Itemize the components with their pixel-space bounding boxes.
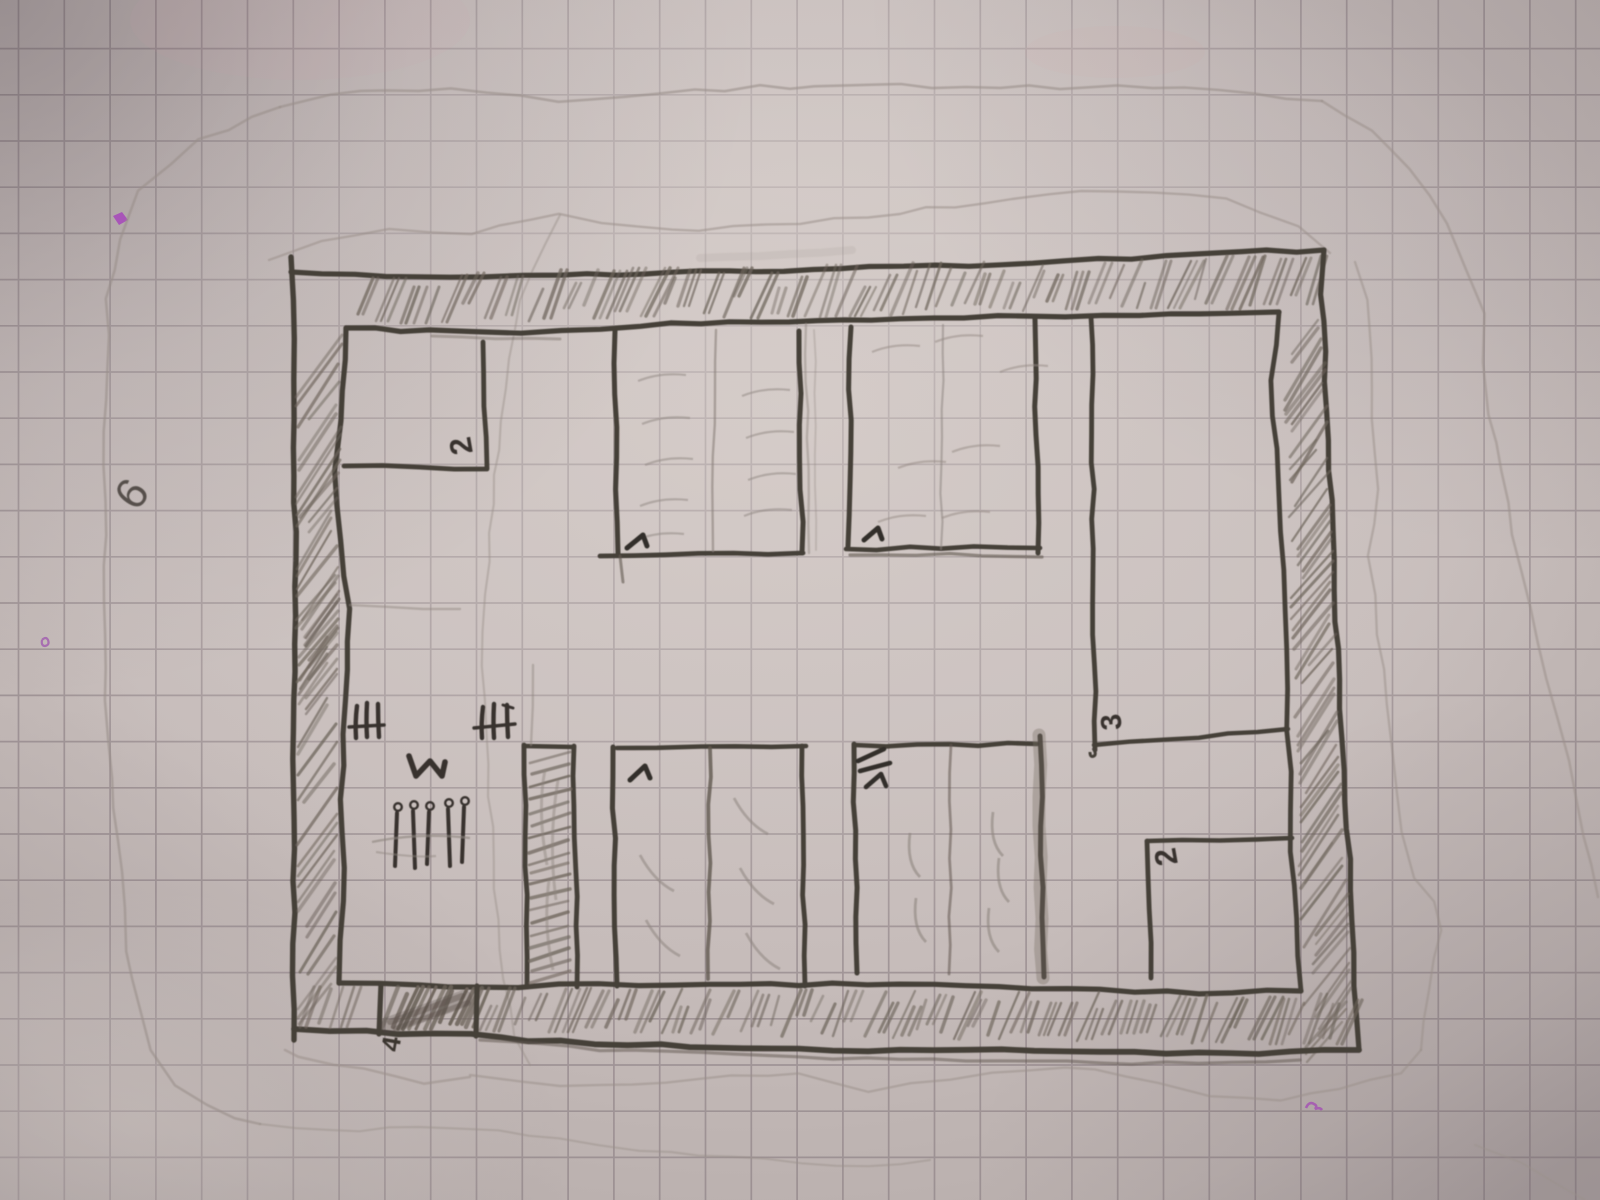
- svg-text:3: 3: [1095, 713, 1128, 732]
